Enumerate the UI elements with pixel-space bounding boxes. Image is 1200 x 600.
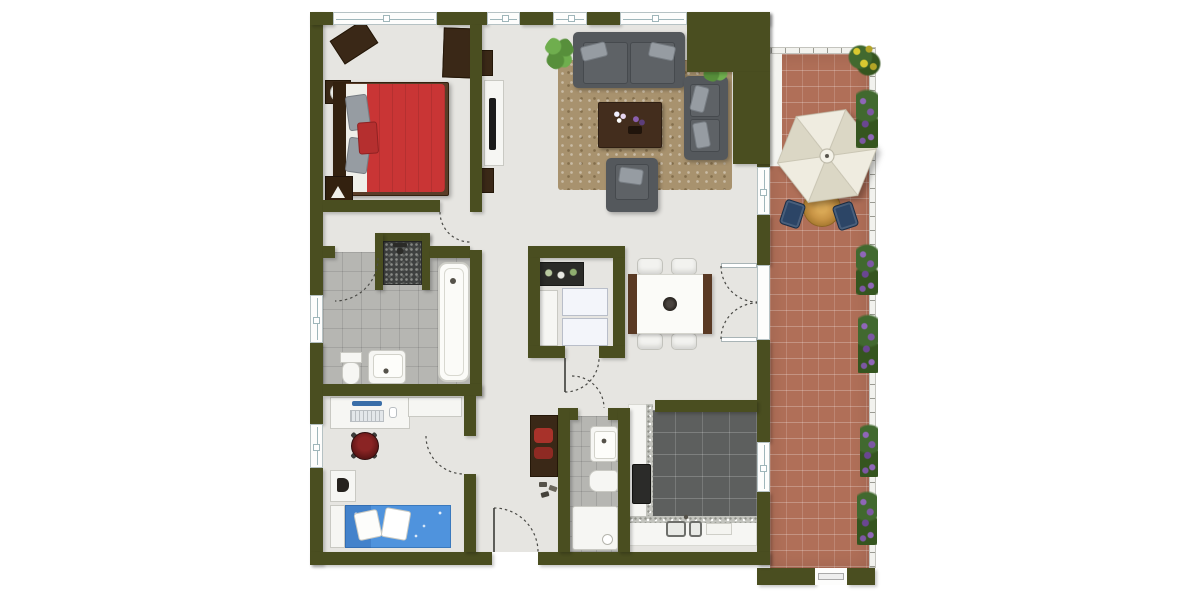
window-living-right [757,167,770,215]
basket-laundry [331,186,345,198]
wall-left-middle [310,343,323,424]
wall-right-mid-1 [757,215,770,265]
bathroom-sink-basin [373,354,403,378]
terrace-wall-bottom-right [847,568,875,585]
kitchen-floor [648,410,757,522]
wall-bedroom-living [470,25,482,212]
wall-guestbath-left [558,408,570,552]
window-bedroom-top [333,12,437,25]
oven [632,464,651,504]
wall-bathroom-top-right [430,246,470,258]
french-door-leaf-top [721,263,757,268]
toilet-bowl [342,362,360,385]
kitchen-sink-basin-2 [689,521,702,537]
wall-top-4 [587,12,620,25]
dryer [562,318,608,346]
dining-chair-top-right [671,258,697,275]
dining-chair-bottom-left [637,333,663,350]
desk-keyboard [350,410,384,422]
window-kitchen-right [757,442,770,492]
dining-table-edge-right [703,274,712,334]
wall-bathroom-right [470,250,482,396]
flower-box-yellow [846,40,882,78]
desk-mouse [389,407,397,418]
media-cabinet-bottom [480,168,494,193]
french-door-leaf-bottom [721,337,757,342]
window-living-top-2 [553,12,587,25]
hall-wardrobe [530,415,558,477]
wall-kidsroom-right-lower [464,474,476,552]
wall-left-upper [310,12,323,295]
kids-bed-headboard [330,505,345,548]
window-living-top-3 [620,12,687,25]
masonry-block-top [687,12,770,72]
wall-top-1 [310,12,333,25]
flower-box-purple-2 [856,243,878,295]
wall-guestbath-top-left [570,408,578,420]
nightstand-item [337,478,349,492]
dining-centerpiece [663,297,677,311]
flower-box-purple-4 [860,423,878,477]
kids-pillow-2 [381,507,412,541]
washing-machine [562,288,608,316]
sofa-two-seater [684,76,728,160]
wall-top-3 [520,12,553,25]
wall-guestbath-top-right [608,408,618,420]
terrace-wall-bottom-left [757,568,815,585]
wall-storage-bottom-right [599,346,625,358]
wardrobe-clothes-2 [534,447,553,459]
kitchen-sink-basin-1 [666,521,686,537]
shower-niche-right [422,233,430,290]
wall-top-2 [437,12,487,25]
double-bed-duvet [367,84,445,192]
wall-bottom-right [538,552,770,565]
wardrobe-clothes-1 [534,428,553,443]
storage-shelf [538,262,584,286]
kitchen-drainboard [706,523,732,535]
armchair-pillow [618,166,644,185]
bed-red-cushion [357,121,379,154]
wall-shelf [408,397,462,417]
wall-storage-bottom-left [528,346,565,358]
dining-table-edge-left [628,274,637,334]
office-chair-seat [351,432,379,460]
shower-mosaic [383,241,422,285]
french-door-threshold [757,265,770,340]
tv-screen [489,98,496,150]
plant-living-left [544,36,574,70]
wall-storage-right [613,258,625,346]
armchair [606,158,658,212]
flower-box-purple-1 [856,88,878,148]
wall-bedroom-bottom [323,200,440,212]
wall-left-lower [310,468,323,565]
coffee-table-tray [628,126,642,134]
wall-bottom-left [310,552,492,565]
dining-chair-bottom-right [671,333,697,350]
masonry-block-arm [733,72,770,164]
window-living-top-1 [487,12,520,25]
shower-niche-left [375,233,383,290]
wall-storage-top [528,246,625,258]
guest-shower-drain [602,534,613,545]
storage-counter [538,290,558,346]
desk-monitor [352,401,382,406]
wall-kidsroom-right-upper [464,396,476,436]
wall-right-mid-2 [757,340,770,442]
floor-plan [0,0,1200,600]
bathtub [438,262,470,382]
coffee-table-flowers [612,110,628,124]
office-chair [347,428,381,462]
wall-bathroom-bottom [323,384,482,396]
dining-chair-top-left [637,258,663,275]
sofa-three-seater [573,32,685,88]
guest-sink-basin [594,431,616,459]
shoes-1 [539,482,547,487]
guest-toilet [589,470,618,492]
terrace-gate-symbol [818,573,844,580]
window-bathroom-left [310,295,323,343]
wall-bathroom-top-left [323,246,335,258]
wall-kitchen-top [655,400,757,412]
wall-storage-left [528,258,540,346]
flower-box-purple-3 [858,313,878,373]
flower-box-purple-5 [857,490,877,545]
window-kidsroom-left [310,424,323,468]
wall-guestbath-right [618,408,630,552]
